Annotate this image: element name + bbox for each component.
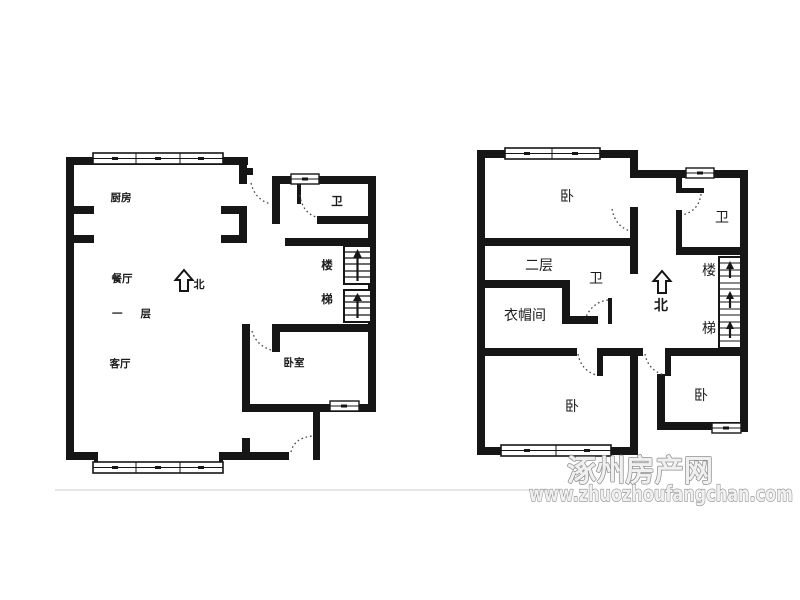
baseboard-line <box>55 489 553 491</box>
watermark: 涿州房产网 www.zhuozhoufangchan.com <box>529 454 793 506</box>
bedroom-top-label: 卧 <box>560 189 574 205</box>
floor-level-label: 一层 <box>112 308 169 320</box>
floor-plan-page: 厨房 餐厅 北 一层 客厅 卧室 卫 楼 梯 <box>0 0 800 600</box>
window <box>291 174 319 184</box>
bathroom-middle-label: 卫 <box>589 271 603 287</box>
north-label: 北 <box>654 298 668 314</box>
window <box>93 153 223 164</box>
floor-level-label: 二层 <box>525 258 553 274</box>
watermark-site-url: www.zhuozhoufangchan.com <box>529 482 793 506</box>
second-floor-walls <box>477 150 748 455</box>
bathroom-label: 卫 <box>331 194 343 208</box>
cloakroom-label: 衣帽间 <box>504 308 546 324</box>
living-room-label: 客厅 <box>109 357 131 370</box>
second-floor-plan: 卧 卫 二层 卫 衣帽间 北 楼 梯 卧 卧 <box>477 148 748 456</box>
first-floor-plan: 厨房 餐厅 北 一层 客厅 卧室 卫 楼 梯 <box>66 153 376 473</box>
window <box>330 401 359 411</box>
bathroom-top-label: 卫 <box>715 210 729 226</box>
bedroom-bottom-right-label: 卧 <box>694 388 708 404</box>
window <box>686 168 714 178</box>
bedroom-label: 卧室 <box>284 356 305 369</box>
stairs-icon <box>344 246 371 322</box>
kitchen-label: 厨房 <box>111 191 132 204</box>
bedroom-bottom-left-label: 卧 <box>565 399 579 415</box>
floor-plan-image: 厨房 餐厅 北 一层 客厅 卧室 卫 楼 梯 <box>0 0 800 600</box>
stairs-label-upper: 楼 <box>702 263 716 279</box>
north-label: 北 <box>194 277 205 291</box>
window <box>505 148 600 159</box>
stairs-label-lower: 梯 <box>321 292 333 306</box>
window <box>93 462 223 473</box>
north-arrow-icon <box>654 271 671 293</box>
stairs-icon <box>719 257 741 348</box>
stairs-label-upper: 楼 <box>321 258 333 272</box>
stairs-label-lower: 梯 <box>702 321 716 337</box>
dining-room-label: 餐厅 <box>111 272 133 285</box>
window <box>712 423 741 433</box>
north-arrow-icon <box>176 270 193 291</box>
